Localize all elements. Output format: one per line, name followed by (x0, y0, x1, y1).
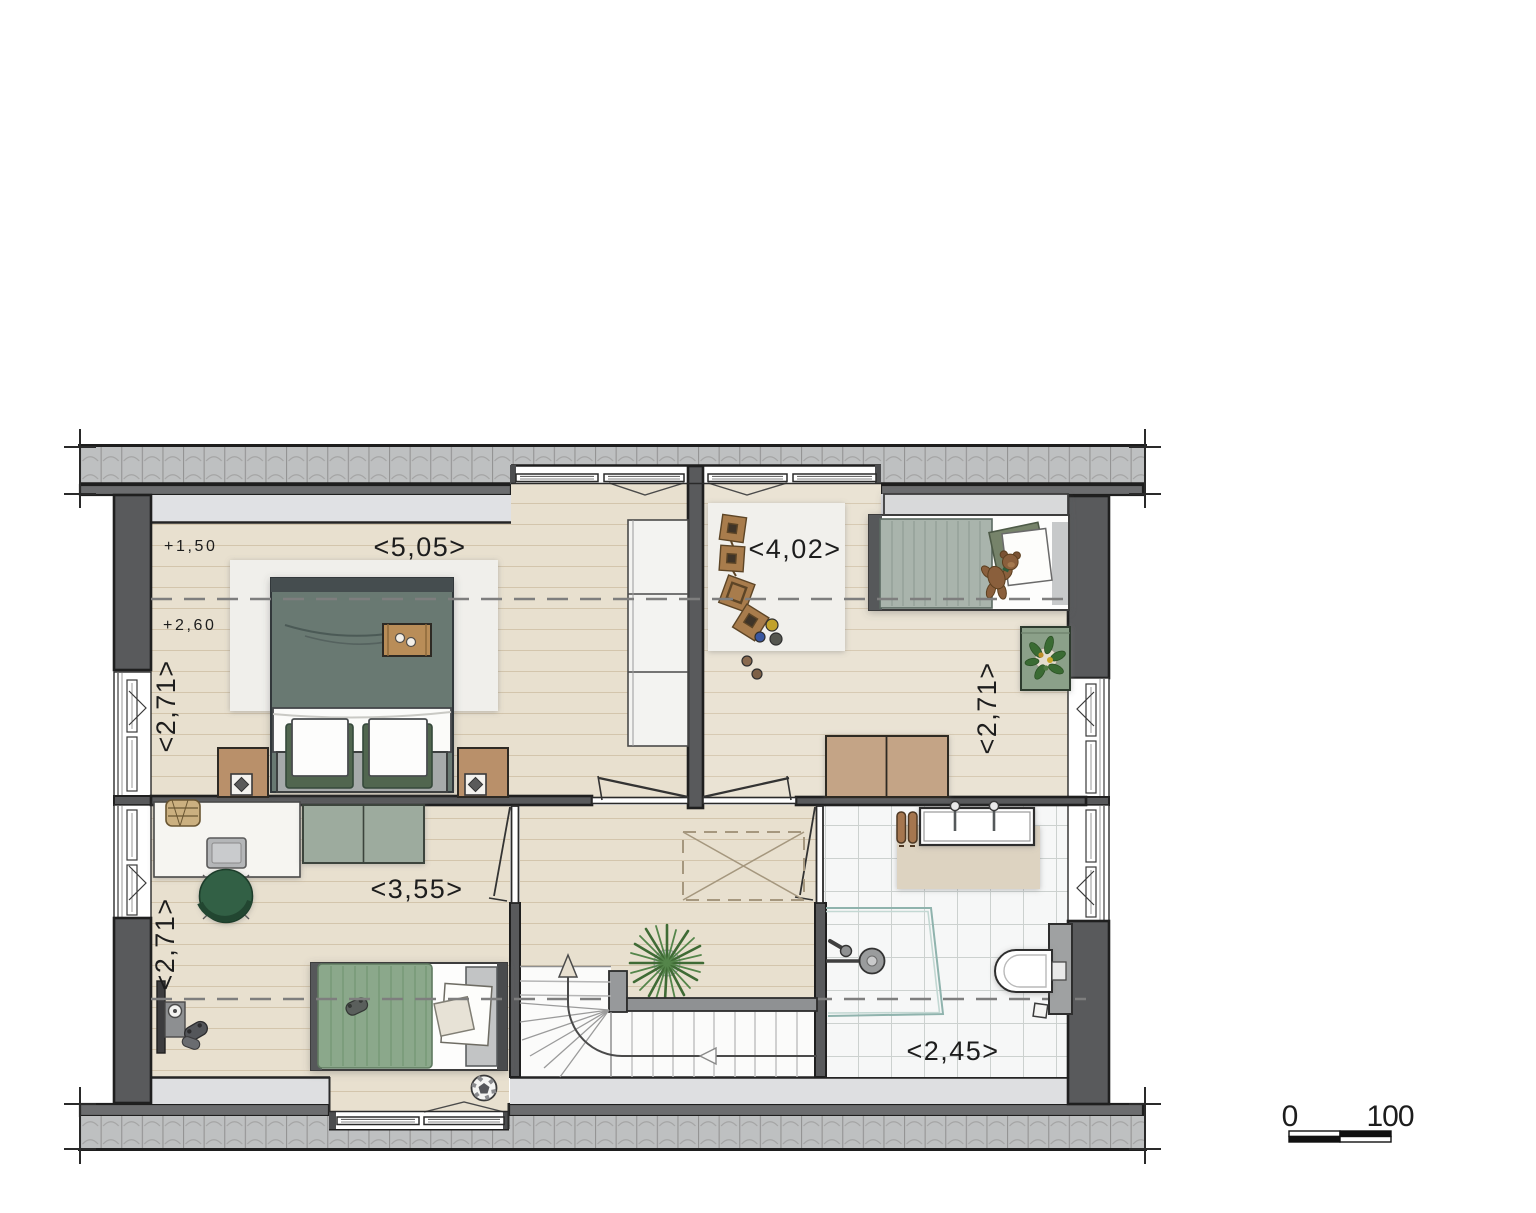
svg-text:<4,02>: <4,02> (748, 534, 841, 564)
svg-text:<2,71>: <2,71> (150, 897, 180, 990)
svg-text:<3,55>: <3,55> (370, 874, 463, 904)
svg-text:<2,71>: <2,71> (972, 661, 1002, 754)
svg-text:100: 100 (1366, 1100, 1413, 1133)
svg-text:+1,50: +1,50 (164, 538, 217, 555)
svg-text:<2,45>: <2,45> (906, 1036, 999, 1066)
svg-text:0: 0 (1282, 1100, 1299, 1133)
svg-text:<5,05>: <5,05> (373, 532, 466, 562)
svg-text:+2,60: +2,60 (163, 617, 216, 634)
svg-text:<2,71>: <2,71> (151, 659, 181, 752)
